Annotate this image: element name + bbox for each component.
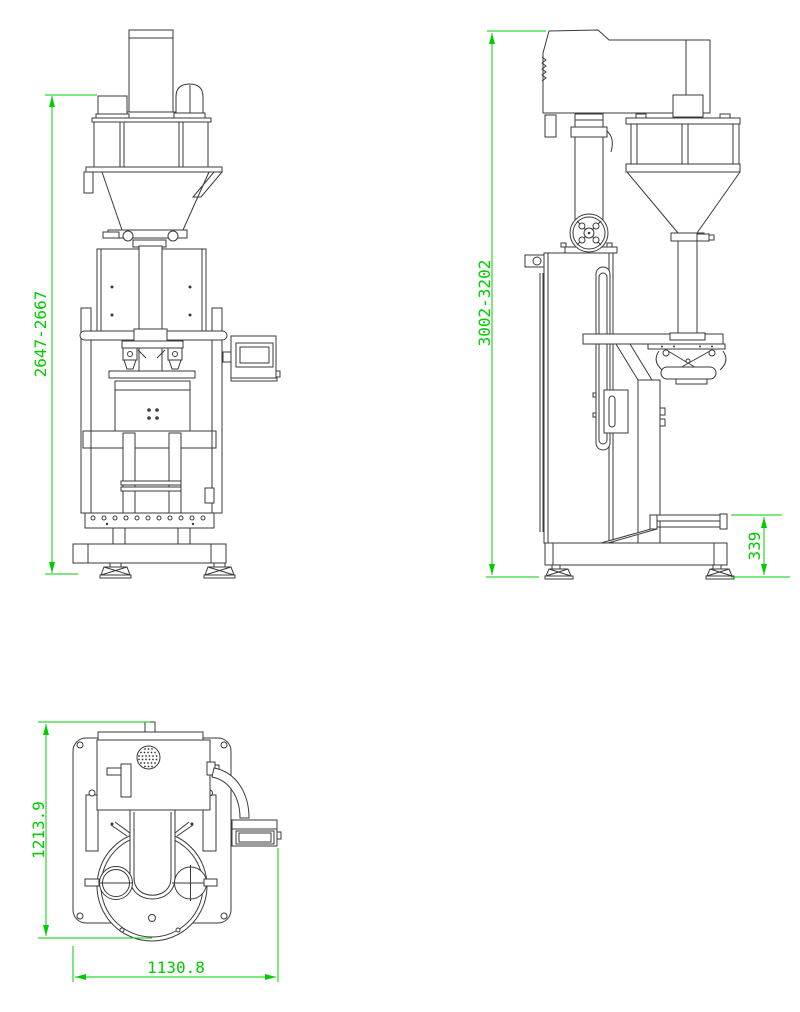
sv-dimension-height-label: 3002-3202 bbox=[475, 260, 494, 347]
fv-dome-cover bbox=[174, 84, 205, 118]
pv-fill-column bbox=[130, 810, 175, 899]
fv-hmi-panel bbox=[223, 336, 280, 381]
fv-fill-column bbox=[139, 246, 162, 377]
fv-leg-frame bbox=[83, 431, 216, 513]
fv-dimension-height-label: 2647-2667 bbox=[31, 291, 50, 378]
pv-top-plate bbox=[98, 722, 203, 740]
side-view bbox=[525, 30, 740, 579]
drawing-canvas: 2647-2667 3002-3202 339 1213.9 1130.8 bbox=[0, 0, 800, 1012]
front-view bbox=[73, 30, 280, 578]
fv-crossbar bbox=[80, 329, 227, 342]
sv-dimension-conveyor-label: 339 bbox=[745, 532, 764, 561]
pv-dimension-width-label: 1130.8 bbox=[147, 958, 205, 977]
fv-base bbox=[73, 528, 235, 578]
fv-weigher-box bbox=[109, 371, 195, 431]
sv-support-leg bbox=[616, 344, 665, 543]
sv-conveyor bbox=[601, 514, 727, 543]
sv-handwheel bbox=[570, 214, 608, 252]
sv-side-bracket bbox=[525, 255, 544, 267]
sv-slide-panel bbox=[604, 390, 628, 433]
fv-conveyor bbox=[85, 513, 214, 528]
sv-dimension-height: 3002-3202 bbox=[475, 31, 546, 577]
sv-fill-tube bbox=[671, 233, 714, 334]
sv-dimension-conveyor: 339 bbox=[731, 515, 790, 577]
fv-motor bbox=[126, 30, 177, 118]
fv-hopper bbox=[84, 118, 222, 247]
pv-dimension-depth-label: 1213.9 bbox=[29, 801, 48, 859]
pv-hmi-panel bbox=[232, 820, 281, 846]
sv-base bbox=[545, 543, 734, 579]
fv-junction-box bbox=[96, 96, 129, 118]
plan-view bbox=[73, 722, 281, 941]
technical-drawing: 2647-2667 3002-3202 339 1213.9 1130.8 bbox=[0, 0, 800, 1012]
sv-upper-column bbox=[571, 114, 612, 222]
sv-hopper bbox=[626, 114, 740, 233]
